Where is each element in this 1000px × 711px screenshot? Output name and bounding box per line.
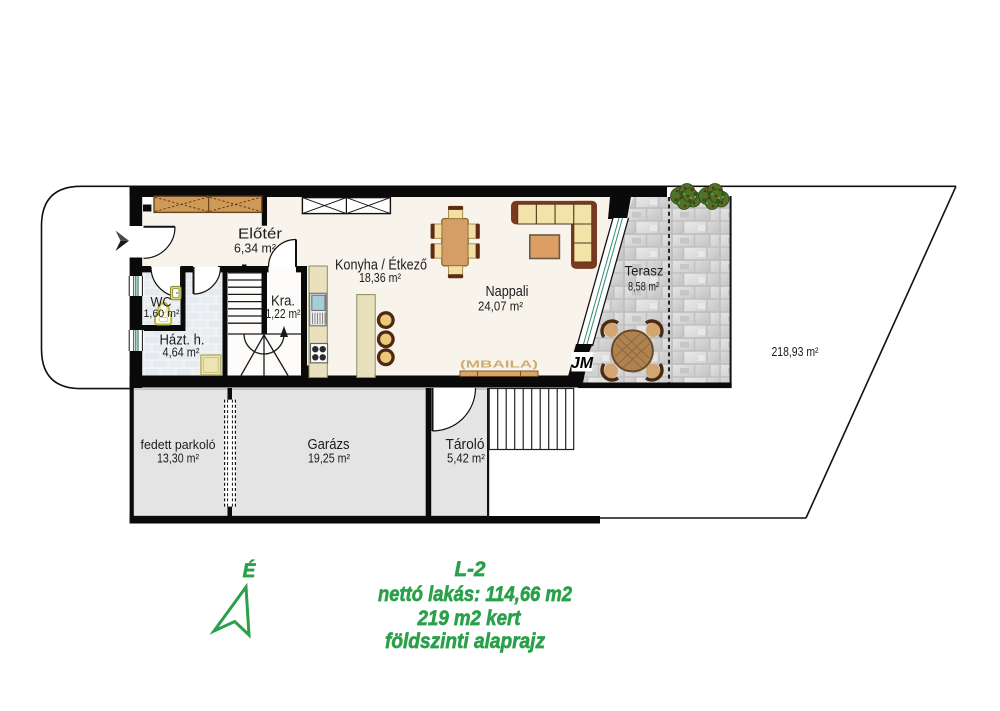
svg-text:nettó lakás: 114,66 m2: nettó lakás: 114,66 m2 (378, 583, 572, 606)
svg-text:É: É (243, 560, 257, 582)
svg-text:219 m2 kert: 219 m2 kert (417, 607, 522, 630)
svg-text:4,64 m²: 4,64 m² (163, 345, 201, 360)
svg-text:24,07 m²: 24,07 m² (478, 299, 524, 314)
svg-text:JM: JM (571, 355, 594, 372)
svg-text:Terasz: Terasz (625, 263, 664, 279)
svg-text:6,34 m²: 6,34 m² (234, 241, 277, 256)
svg-text:8,58 m²: 8,58 m² (628, 280, 659, 294)
svg-text:1,60 m²: 1,60 m² (144, 308, 180, 320)
svg-text:L-2: L-2 (455, 558, 486, 581)
svg-text:19,25 m²: 19,25 m² (308, 451, 351, 466)
svg-text:13,30 m²: 13,30 m² (157, 451, 200, 466)
svg-text:218,93 m²: 218,93 m² (772, 344, 820, 359)
svg-text:földszinti alaprajz: földszinti alaprajz (385, 630, 545, 653)
svg-text:18,36 m²: 18,36 m² (359, 270, 402, 285)
svg-text:(MBAILA): (MBAILA) (460, 360, 538, 371)
svg-text:1,22 m²: 1,22 m² (266, 306, 302, 321)
svg-text:5,42 m²: 5,42 m² (447, 451, 486, 466)
svg-text:Nappali: Nappali (486, 283, 529, 300)
